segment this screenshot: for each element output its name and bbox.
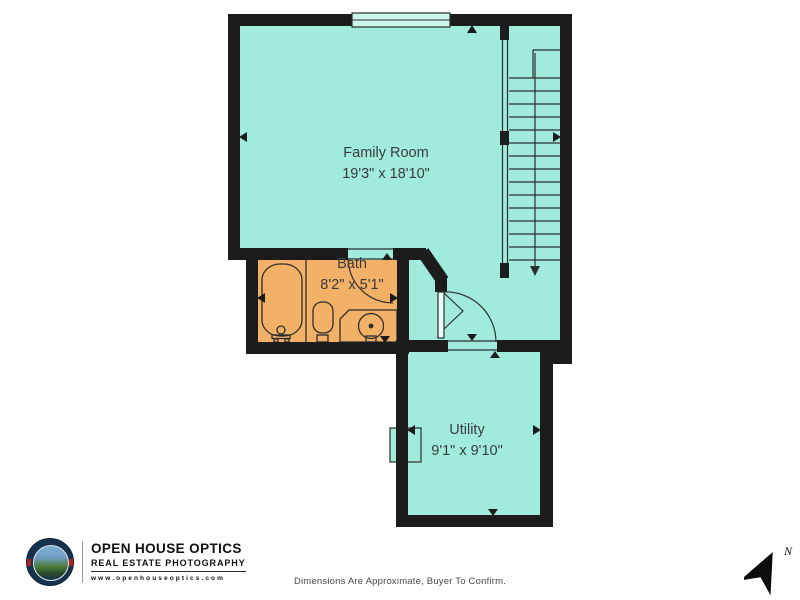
family-room-floor bbox=[234, 20, 566, 260]
wall-utility-bottom bbox=[396, 515, 553, 527]
wall-utility-right bbox=[540, 340, 553, 527]
stair-wall-stub-top bbox=[500, 26, 509, 40]
north-arrow-icon: N bbox=[744, 544, 796, 596]
utility-label: Utility 9'1" x 9'10" bbox=[431, 420, 502, 462]
room-name: Bath bbox=[320, 254, 383, 275]
room-dimensions: 8'2" x 5'1" bbox=[320, 275, 383, 296]
wall-utility-left bbox=[396, 340, 408, 527]
floorplan-drawing bbox=[0, 0, 800, 600]
company-name: OPEN HOUSE OPTICS bbox=[91, 541, 246, 556]
wall-door-jamb bbox=[435, 278, 447, 292]
floorplan-page: Family Room 19'3" x 18'10" Bath 8'2" x 5… bbox=[0, 0, 800, 600]
stair-wall-stub-bottom bbox=[500, 263, 509, 278]
room-dimensions: 19'3" x 18'10" bbox=[342, 164, 430, 185]
wall-left bbox=[228, 14, 240, 260]
stair-wall-stub-mid bbox=[500, 131, 509, 145]
bath-label: Bath 8'2" x 5'1" bbox=[320, 254, 383, 296]
wall-bath-left bbox=[246, 248, 258, 354]
wall-right bbox=[560, 14, 572, 364]
room-dimensions: 9'1" x 9'10" bbox=[431, 441, 502, 462]
wall-bath-right bbox=[397, 260, 409, 344]
wall-bath-bottom bbox=[246, 342, 409, 354]
window bbox=[352, 13, 450, 27]
family-room-label: Family Room 19'3" x 18'10" bbox=[342, 143, 430, 185]
room-name: Utility bbox=[431, 420, 502, 441]
company-tagline: REAL ESTATE PHOTOGRAPHY bbox=[91, 557, 246, 569]
door-leaf bbox=[438, 292, 444, 338]
north-label: N bbox=[784, 544, 792, 559]
room-name: Family Room bbox=[342, 143, 430, 164]
disclaimer-text: Dimensions Are Approximate, Buyer To Con… bbox=[0, 576, 800, 587]
